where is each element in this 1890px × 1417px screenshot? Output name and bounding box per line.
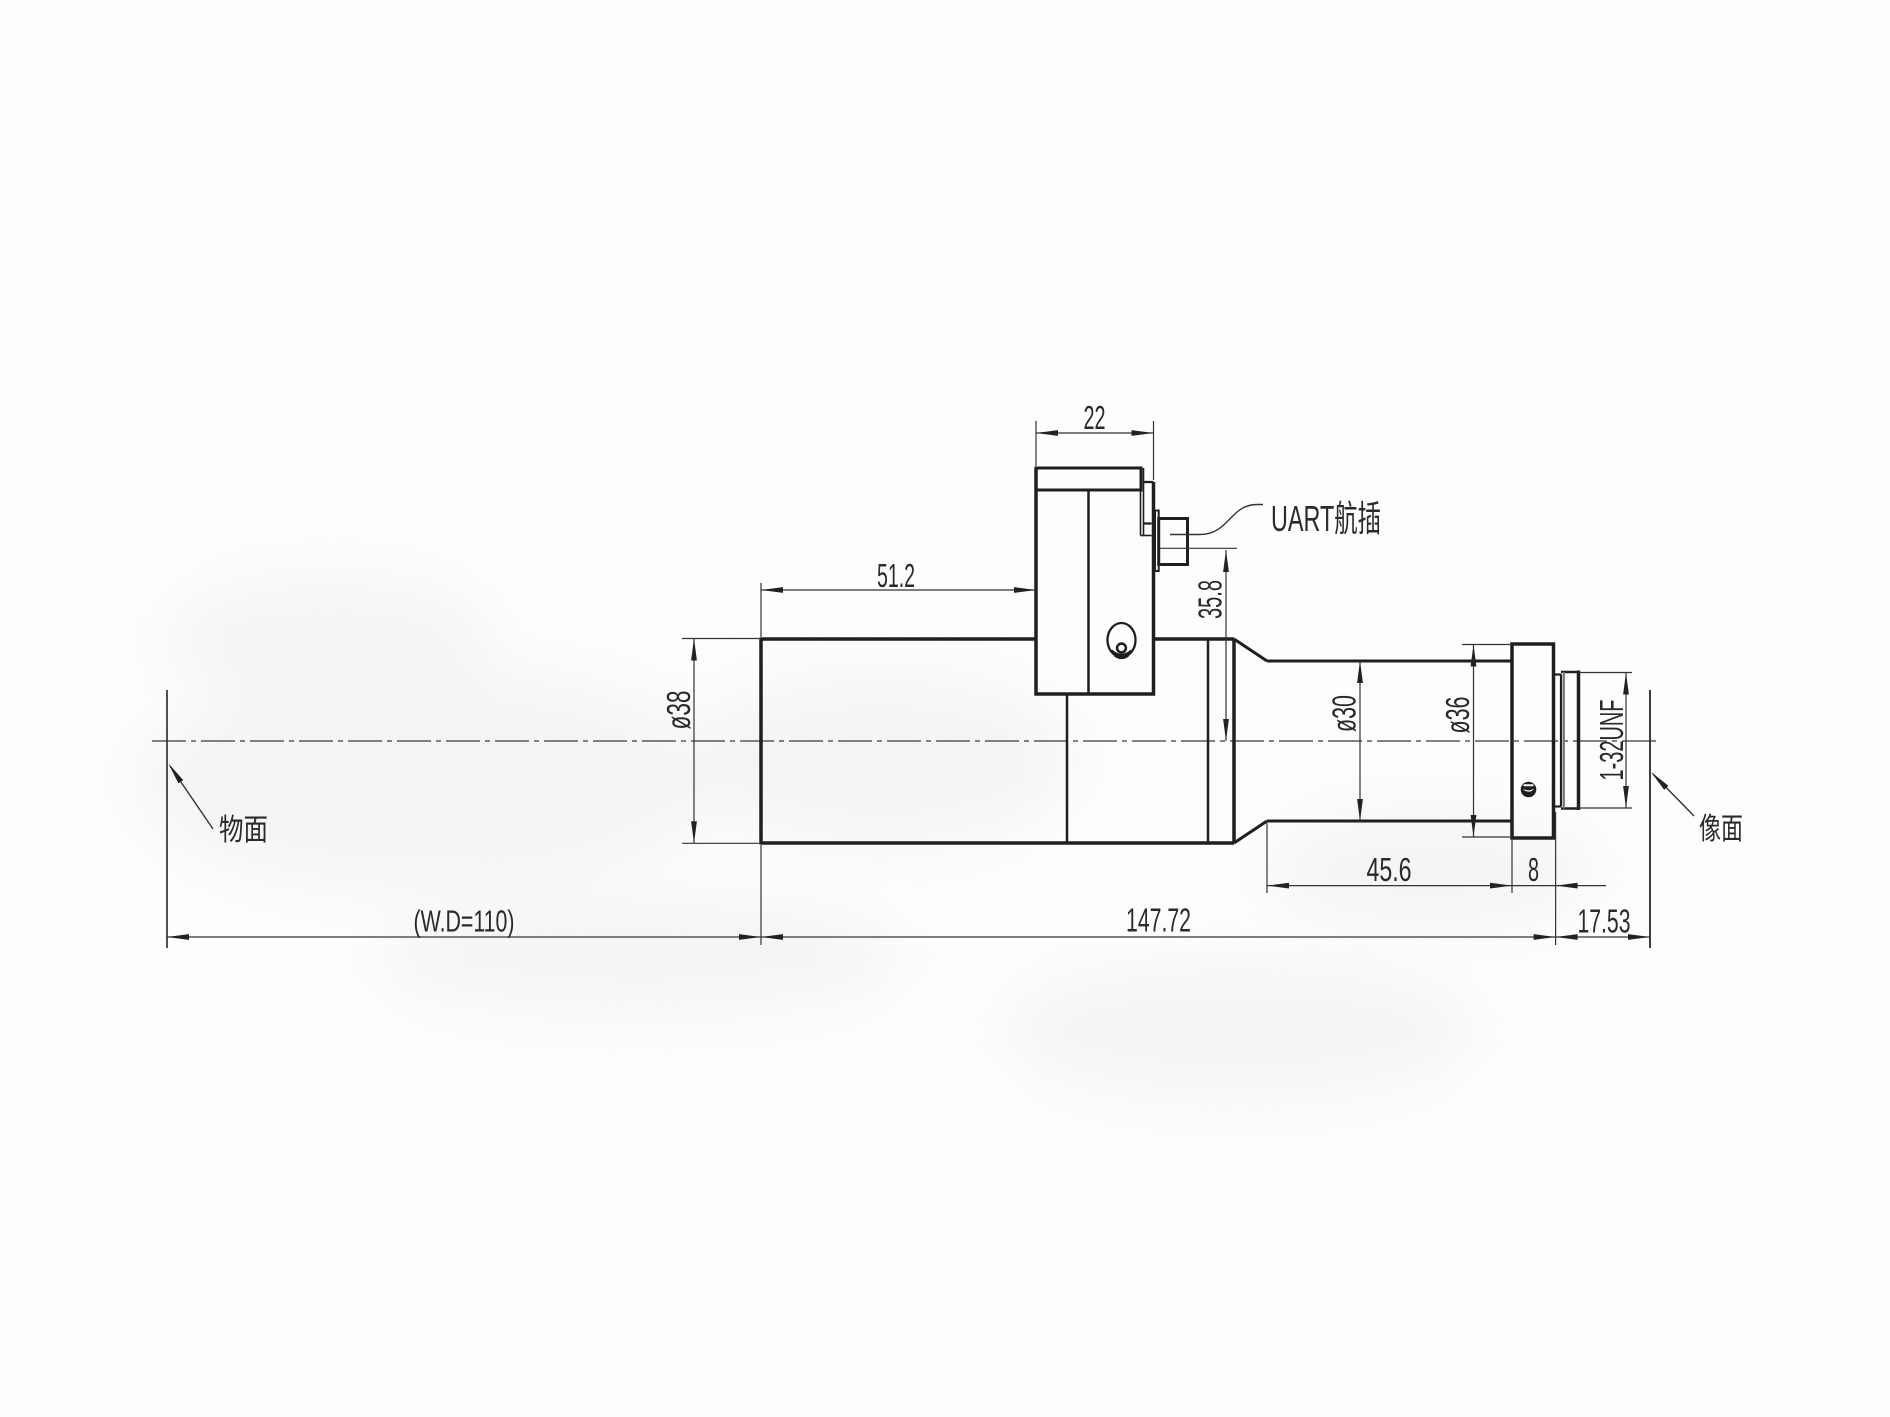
svg-text:像面: 像面	[1699, 813, 1743, 846]
svg-text:UART航插: UART航插	[1271, 498, 1381, 539]
svg-text:ø36: ø36	[1439, 697, 1476, 734]
svg-text:物面: 物面	[219, 814, 268, 847]
svg-text:1-32UNF: 1-32UNF	[1593, 700, 1630, 781]
svg-text:22: 22	[1084, 399, 1106, 436]
svg-text:35.8: 35.8	[1192, 580, 1229, 619]
svg-text:8: 8	[1528, 851, 1539, 888]
svg-text:ø38: ø38	[660, 691, 697, 730]
svg-text:51.2: 51.2	[877, 557, 915, 594]
svg-text:ø30: ø30	[1326, 695, 1363, 732]
svg-text:45.6: 45.6	[1367, 851, 1412, 888]
svg-text:17.53: 17.53	[1578, 903, 1631, 940]
svg-text:147.72: 147.72	[1126, 902, 1191, 939]
svg-text:(W.D=110): (W.D=110)	[414, 904, 515, 939]
